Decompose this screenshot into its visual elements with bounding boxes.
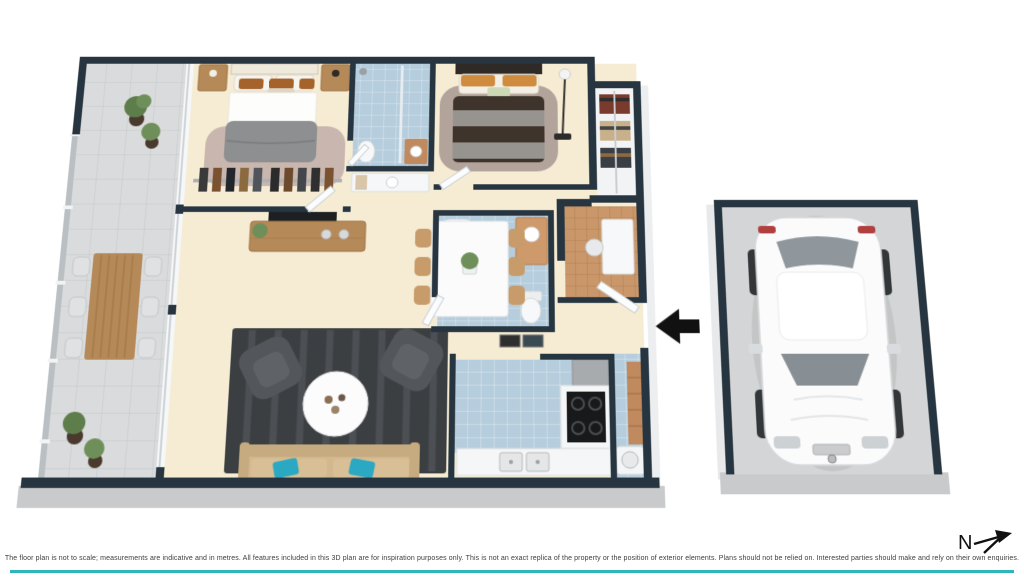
tv — [268, 212, 337, 221]
kitchen — [454, 360, 611, 476]
car — [742, 216, 911, 472]
grille — [813, 444, 851, 454]
fridge — [572, 360, 609, 386]
bottom-wall — [21, 478, 660, 488]
car-roof — [776, 272, 868, 340]
taillight — [758, 226, 776, 233]
floor-slab-edge — [16, 486, 665, 508]
garage-slab-edge — [720, 472, 950, 494]
footer-accent-bar — [10, 570, 1014, 573]
master-bed — [223, 64, 320, 163]
garage-top-wall — [714, 200, 918, 207]
hall-vanity — [351, 173, 429, 191]
bedroom2-bed — [452, 64, 544, 163]
sofa — [238, 442, 420, 481]
floor-plan-svg — [0, 35, 1024, 543]
decor-bowl — [339, 230, 349, 239]
basin — [386, 177, 398, 188]
decor-bowl — [321, 230, 331, 239]
desk-chair — [585, 239, 603, 256]
balustrade-post — [48, 359, 58, 363]
outdoor-dining-table — [84, 253, 143, 359]
rear-window — [776, 236, 861, 268]
north-label: N — [958, 532, 972, 554]
north-indicator: N — [950, 520, 1022, 560]
disclaimer-text: The floor plan is not to scale; measurem… — [0, 555, 1024, 562]
apartment — [16, 57, 706, 508]
wardrobe-top-wall — [588, 81, 641, 88]
entry-arrow-icon — [655, 309, 700, 344]
ensuite-basin — [410, 146, 422, 157]
desk — [602, 219, 635, 274]
garage — [706, 200, 950, 494]
side-mirror — [886, 344, 901, 354]
nightstand — [198, 65, 228, 91]
badge — [828, 455, 837, 463]
balustrade-post — [39, 439, 50, 443]
dining-area — [413, 221, 524, 316]
windshield — [781, 354, 872, 386]
washing-machine — [616, 447, 644, 475]
side-mirror — [748, 344, 763, 354]
floor-plan-page: N The floor plan is not to scale; measur… — [0, 0, 1024, 576]
top-wall — [79, 57, 595, 64]
wardrobe — [595, 88, 636, 195]
living-room — [223, 324, 448, 482]
nightstand — [321, 65, 350, 91]
headlight — [861, 436, 889, 448]
balustrade-post — [63, 205, 73, 209]
taillight — [857, 226, 875, 233]
headlight — [773, 436, 800, 448]
cooktop — [567, 392, 606, 443]
balustrade-post — [55, 281, 65, 285]
plan-scene — [0, 35, 1024, 543]
